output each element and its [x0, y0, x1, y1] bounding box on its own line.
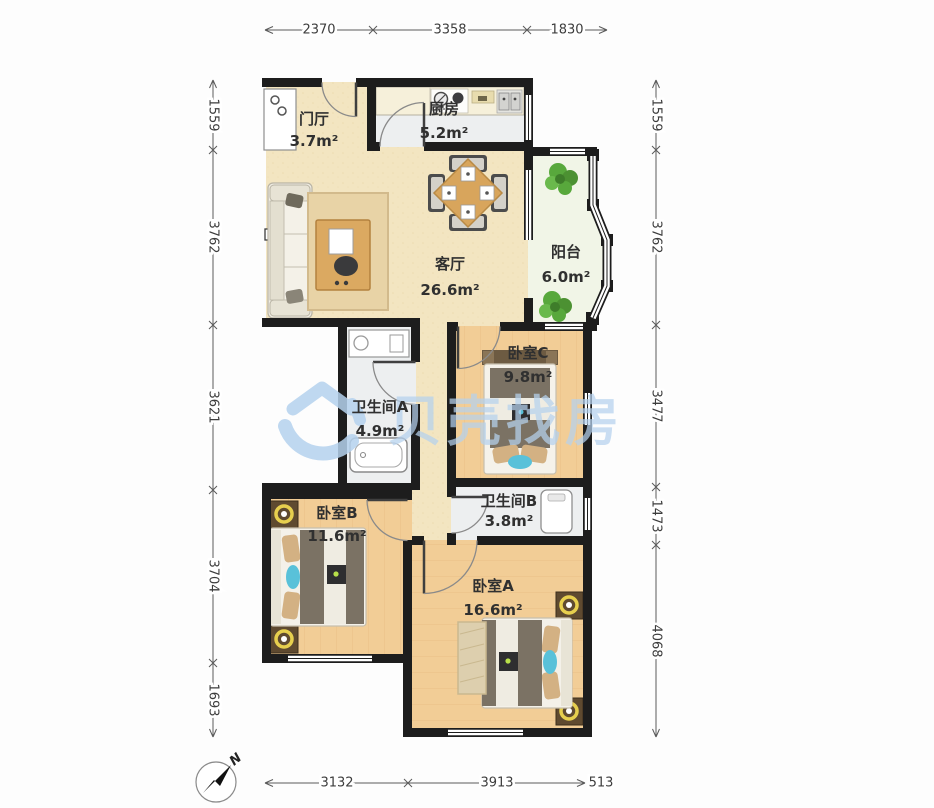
watermark-text: 贝壳找房 [388, 390, 624, 453]
room-label-bathA-area: 4.9m² [356, 422, 405, 440]
dim-left-2: 3621 [206, 390, 221, 423]
dim-left-1: 3762 [206, 220, 221, 253]
dim-bottom-2: 513 [589, 776, 614, 791]
bedroomA-rug [458, 622, 486, 694]
room-label-living-name: 客厅 [434, 255, 465, 273]
washer [349, 330, 409, 357]
room-label-bedroomB-name: 卧室B [316, 504, 357, 522]
shower-cabinet [541, 490, 572, 533]
room-label-bedroomC-name: 卧室C [507, 344, 548, 362]
sink-icon [499, 93, 509, 110]
room-label-entry-area: 3.7m² [290, 132, 339, 150]
room-label-bathA-name: 卫生间A [352, 398, 409, 416]
dim-right-3: 1473 [649, 499, 664, 532]
room-label-living-area: 26.6m² [420, 281, 479, 299]
teapot-icon [334, 256, 358, 276]
floorplan-svg: 贝壳找房 门厅 3.7m² 厨房 5.2m² 客厅 26.6m² 阳台 6.0m… [0, 0, 934, 808]
dim-right: 1559 3762 3477 1473 4068 [649, 80, 664, 737]
room-label-bedroomB-area: 11.6m² [307, 527, 366, 545]
dim-left-0: 1559 [206, 98, 221, 131]
dim-top-1: 3358 [433, 23, 466, 38]
dim-left-4: 1693 [206, 683, 221, 716]
dim-right-0: 1559 [649, 98, 664, 131]
room-label-bedroomC-area: 9.8m² [504, 368, 553, 386]
room-label-kitchen-name: 厨房 [429, 100, 459, 118]
dim-right-2: 3477 [649, 389, 664, 422]
sofa [268, 183, 312, 318]
room-label-entry-name: 门厅 [299, 110, 329, 128]
dim-right-4: 4068 [649, 624, 664, 657]
watermark: 贝壳找房 [285, 388, 624, 453]
compass-north-label: N [227, 751, 245, 770]
dim-top-2: 1830 [550, 23, 583, 38]
dim-bottom: 3132 3913 513 [265, 776, 613, 791]
compass: N [196, 751, 245, 802]
dim-top: 2370 3358 1830 [265, 23, 607, 38]
coffee-table [316, 220, 370, 290]
dim-bottom-1: 3913 [480, 776, 513, 791]
dim-right-1: 3762 [649, 220, 664, 253]
dim-left: 1559 3762 3621 3704 1693 [206, 80, 221, 737]
room-label-balcony-area: 6.0m² [542, 268, 591, 286]
room-label-kitchen-area: 5.2m² [420, 124, 469, 142]
room-label-balcony-name: 阳台 [551, 243, 581, 261]
room-label-bedroomA-area: 16.6m² [463, 601, 522, 619]
floorplan-page: 贝壳找房 门厅 3.7m² 厨房 5.2m² 客厅 26.6m² 阳台 6.0m… [0, 0, 934, 808]
dim-bottom-0: 3132 [320, 776, 353, 791]
dim-left-3: 3704 [206, 559, 221, 592]
room-label-bedroomA-name: 卧室A [472, 577, 514, 595]
room-label-bathB-area: 3.8m² [485, 512, 534, 530]
room-label-bathB-name: 卫生间B [481, 492, 537, 510]
hood-control-icon [478, 96, 487, 101]
dim-top-0: 2370 [302, 23, 335, 38]
